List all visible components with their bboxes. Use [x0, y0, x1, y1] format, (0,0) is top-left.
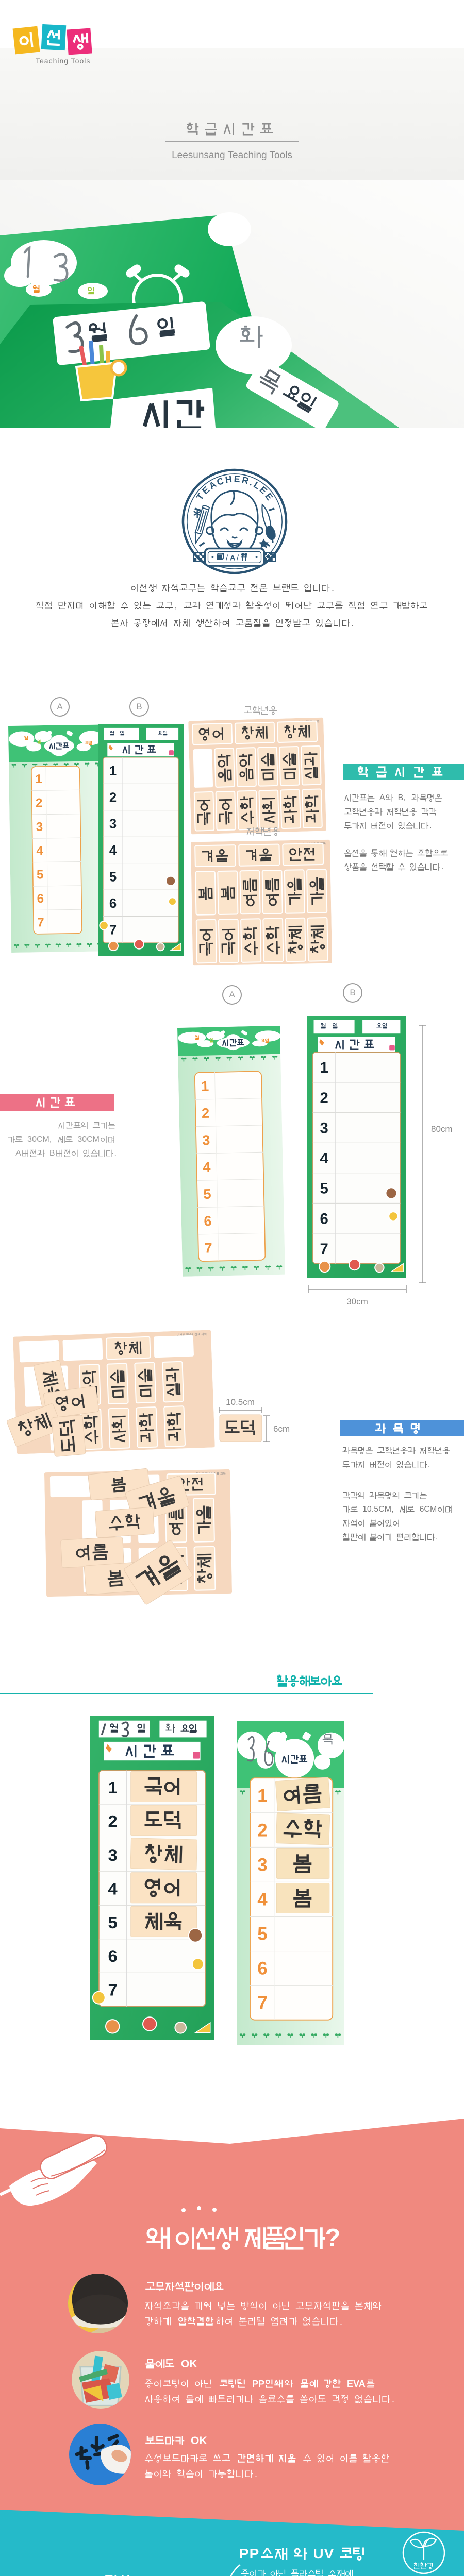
svg-text:6: 6: [37, 892, 44, 906]
svg-text:4: 4: [257, 1890, 268, 1910]
svg-text:2: 2: [202, 1105, 210, 1121]
svg-text:2: 2: [320, 1090, 328, 1107]
svg-text:5: 5: [37, 868, 44, 882]
svg-text:E: E: [234, 474, 240, 485]
svg-text:7: 7: [320, 1241, 328, 1258]
svg-text:5: 5: [109, 870, 117, 885]
svg-text:5: 5: [257, 1924, 267, 1944]
svg-text:3: 3: [108, 1845, 118, 1865]
svg-text:6: 6: [257, 1959, 267, 1979]
svg-text:1: 1: [320, 1059, 328, 1076]
svg-text:6: 6: [109, 896, 117, 911]
svg-text:3: 3: [36, 820, 43, 834]
svg-text:7: 7: [109, 923, 117, 938]
svg-text:3: 3: [320, 1120, 328, 1137]
svg-text:4: 4: [36, 844, 43, 858]
svg-text:4: 4: [108, 1879, 118, 1898]
svg-text:1: 1: [35, 772, 42, 786]
svg-text:3: 3: [109, 817, 117, 832]
svg-text:7: 7: [108, 1980, 118, 1999]
svg-text:3: 3: [257, 1855, 267, 1875]
svg-text:2: 2: [36, 796, 43, 810]
svg-text:6: 6: [204, 1213, 212, 1229]
svg-text:5: 5: [108, 1913, 118, 1932]
svg-text:R: R: [241, 474, 250, 486]
svg-text:6cm: 6cm: [273, 1424, 290, 1434]
svg-text:10.5cm: 10.5cm: [226, 1397, 255, 1407]
svg-text:80cm: 80cm: [431, 1124, 453, 1134]
svg-text:5: 5: [320, 1180, 328, 1197]
svg-text:3: 3: [202, 1132, 210, 1148]
svg-text:4: 4: [203, 1159, 211, 1175]
svg-text:2: 2: [108, 1812, 118, 1831]
svg-text:30cm: 30cm: [346, 1297, 368, 1307]
svg-text:H: H: [224, 474, 233, 485]
svg-text:1: 1: [201, 1078, 209, 1094]
svg-text:C: C: [216, 476, 225, 487]
svg-text:7: 7: [204, 1240, 212, 1256]
svg-text:1: 1: [108, 1778, 118, 1797]
svg-text:A: A: [230, 553, 235, 562]
svg-text:7: 7: [37, 916, 44, 929]
svg-text:6: 6: [108, 1946, 118, 1965]
svg-text:4: 4: [109, 843, 117, 858]
svg-text:6: 6: [320, 1210, 328, 1227]
svg-text:2: 2: [109, 790, 117, 805]
svg-text:7: 7: [257, 1993, 267, 2013]
svg-text:2: 2: [257, 1820, 267, 1840]
svg-text:1: 1: [109, 764, 117, 778]
svg-text:1: 1: [257, 1786, 267, 1806]
svg-text:5: 5: [203, 1186, 211, 1202]
svg-text:4: 4: [320, 1150, 329, 1167]
